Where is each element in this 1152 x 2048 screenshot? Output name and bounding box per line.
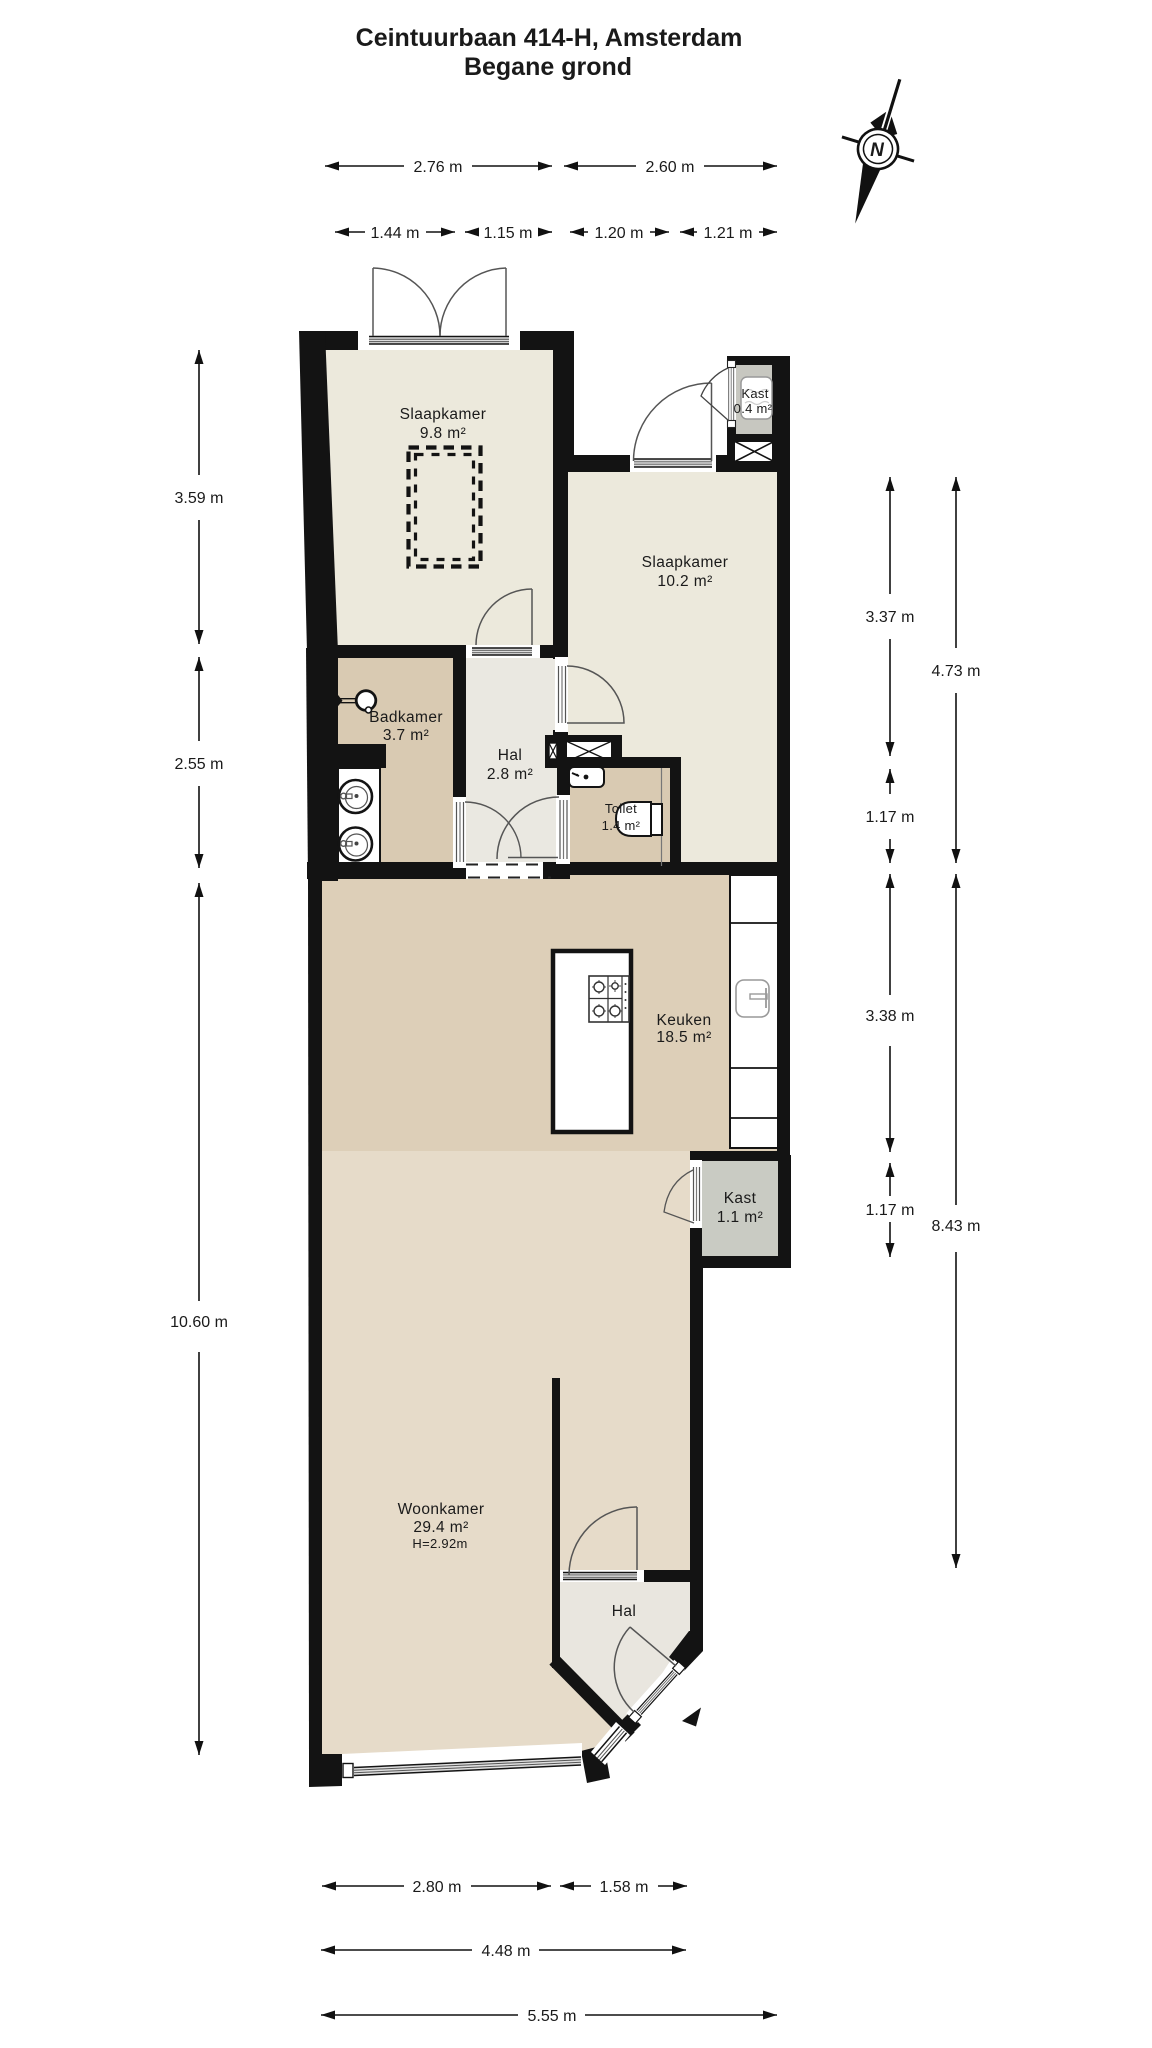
svg-text:Hal: Hal — [498, 747, 522, 764]
svg-text:Kast: Kast — [741, 386, 768, 401]
svg-text:10.2 m²: 10.2 m² — [657, 573, 712, 590]
svg-text:4.48 m: 4.48 m — [482, 1943, 531, 1960]
svg-text:3.7 m²: 3.7 m² — [383, 727, 429, 744]
svg-text:Woonkamer: Woonkamer — [398, 1501, 485, 1518]
svg-text:2.76 m: 2.76 m — [414, 159, 463, 176]
svg-text:Badkamer: Badkamer — [369, 709, 443, 726]
svg-text:18.5 m²: 18.5 m² — [656, 1029, 711, 1046]
svg-text:3.37 m: 3.37 m — [866, 609, 915, 626]
svg-text:1.1 m²: 1.1 m² — [717, 1209, 763, 1226]
svg-text:9.8 m²: 9.8 m² — [420, 425, 466, 442]
svg-text:Ceintuurbaan 414-H, Amsterdam: Ceintuurbaan 414-H, Amsterdam — [356, 24, 743, 52]
svg-text:1.17 m: 1.17 m — [866, 1202, 915, 1219]
svg-text:Slaapkamer: Slaapkamer — [642, 554, 729, 571]
svg-text:1.15 m: 1.15 m — [484, 225, 533, 242]
svg-text:2.80 m: 2.80 m — [413, 1879, 462, 1896]
svg-text:1.17 m: 1.17 m — [866, 809, 915, 826]
svg-text:1.20 m: 1.20 m — [595, 225, 644, 242]
svg-text:1.21 m: 1.21 m — [704, 225, 753, 242]
svg-text:5.55 m: 5.55 m — [528, 2008, 577, 2025]
svg-text:1.4 m²: 1.4 m² — [602, 818, 641, 833]
svg-text:1.58 m: 1.58 m — [600, 1879, 649, 1896]
svg-text:10.60 m: 10.60 m — [170, 1314, 228, 1331]
svg-text:2.8 m²: 2.8 m² — [487, 766, 533, 783]
svg-text:4.73 m: 4.73 m — [932, 663, 981, 680]
svg-text:N: N — [870, 140, 885, 161]
svg-text:2.55 m: 2.55 m — [175, 756, 224, 773]
svg-text:1.44 m: 1.44 m — [371, 225, 420, 242]
svg-text:3.59 m: 3.59 m — [175, 490, 224, 507]
svg-text:3.38 m: 3.38 m — [866, 1008, 915, 1025]
svg-text:Toilet: Toilet — [605, 801, 637, 816]
svg-text:Hal: Hal — [612, 1603, 636, 1620]
svg-text:Keuken: Keuken — [657, 1012, 712, 1029]
svg-text:29.4 m²: 29.4 m² — [413, 1519, 468, 1536]
svg-text:H=2.92m: H=2.92m — [412, 1536, 467, 1551]
svg-text:Slaapkamer: Slaapkamer — [400, 406, 487, 423]
svg-text:Begane grond: Begane grond — [464, 53, 632, 81]
svg-text:2.60 m: 2.60 m — [646, 159, 695, 176]
svg-text:8.43 m: 8.43 m — [932, 1218, 981, 1235]
svg-text:0.4 m²: 0.4 m² — [734, 401, 773, 416]
svg-text:Kast: Kast — [724, 1190, 757, 1207]
